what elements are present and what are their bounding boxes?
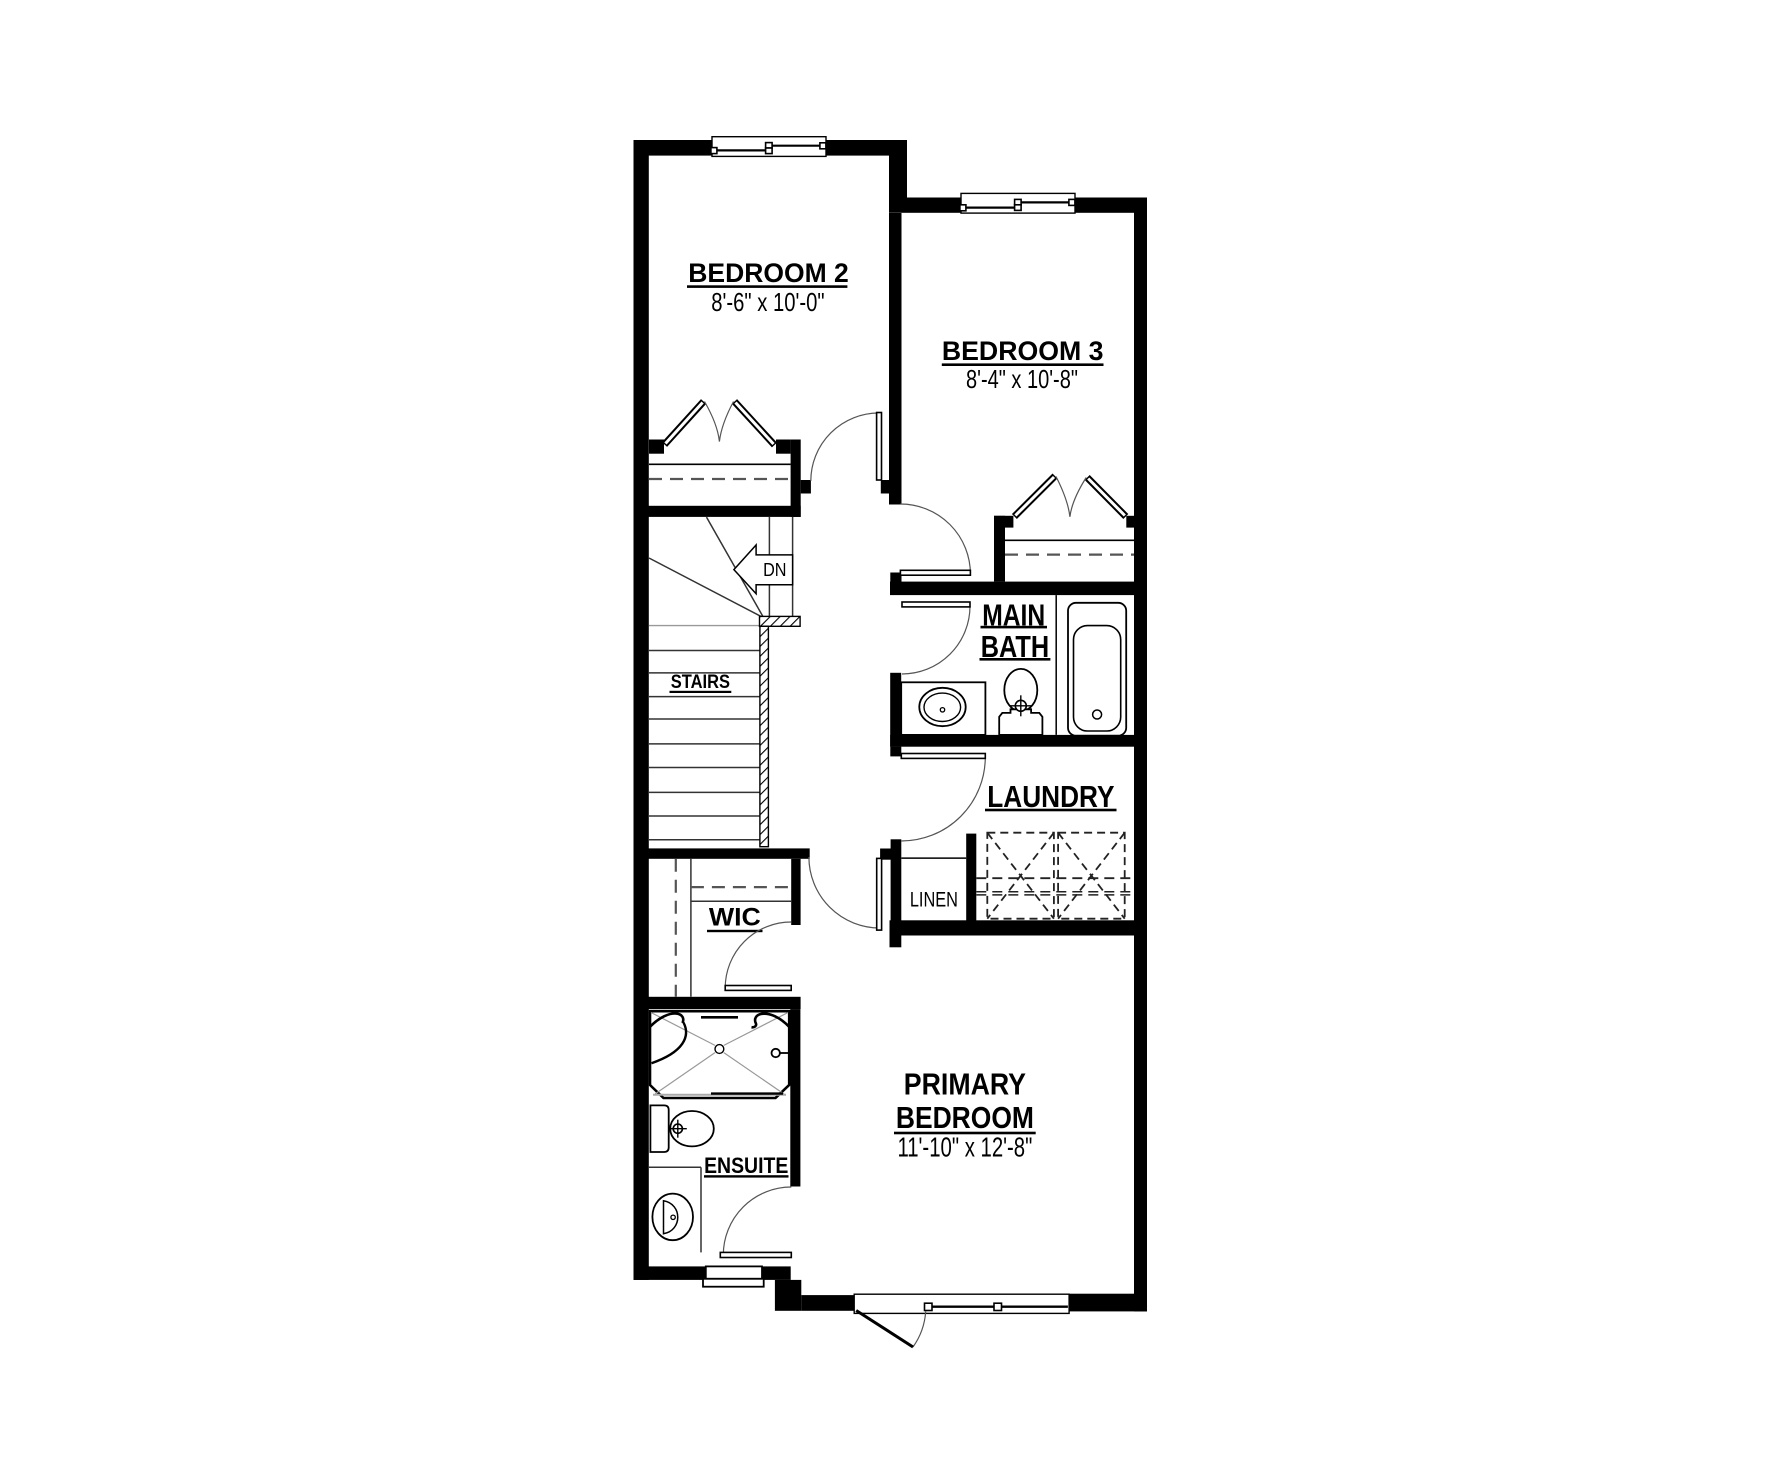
svg-text:WIC: WIC [709, 903, 761, 931]
svg-text:BEDROOM 2: BEDROOM 2 [688, 258, 849, 288]
svg-text:PRIMARY: PRIMARY [904, 1067, 1026, 1102]
svg-text:8'-4" x 10'-8": 8'-4" x 10'-8" [966, 364, 1078, 394]
svg-text:BEDROOM: BEDROOM [896, 1100, 1034, 1135]
svg-text:11'-10" x 12'-8": 11'-10" x 12'-8" [897, 1132, 1032, 1163]
svg-text:8'-6" x 10'-0": 8'-6" x 10'-0" [711, 287, 824, 317]
svg-text:DN: DN [763, 560, 786, 580]
svg-text:STAIRS: STAIRS [671, 672, 730, 693]
svg-text:BEDROOM 3: BEDROOM 3 [942, 336, 1104, 366]
svg-text:LINEN: LINEN [910, 888, 958, 912]
svg-text:ENSUITE: ENSUITE [704, 1153, 788, 1178]
